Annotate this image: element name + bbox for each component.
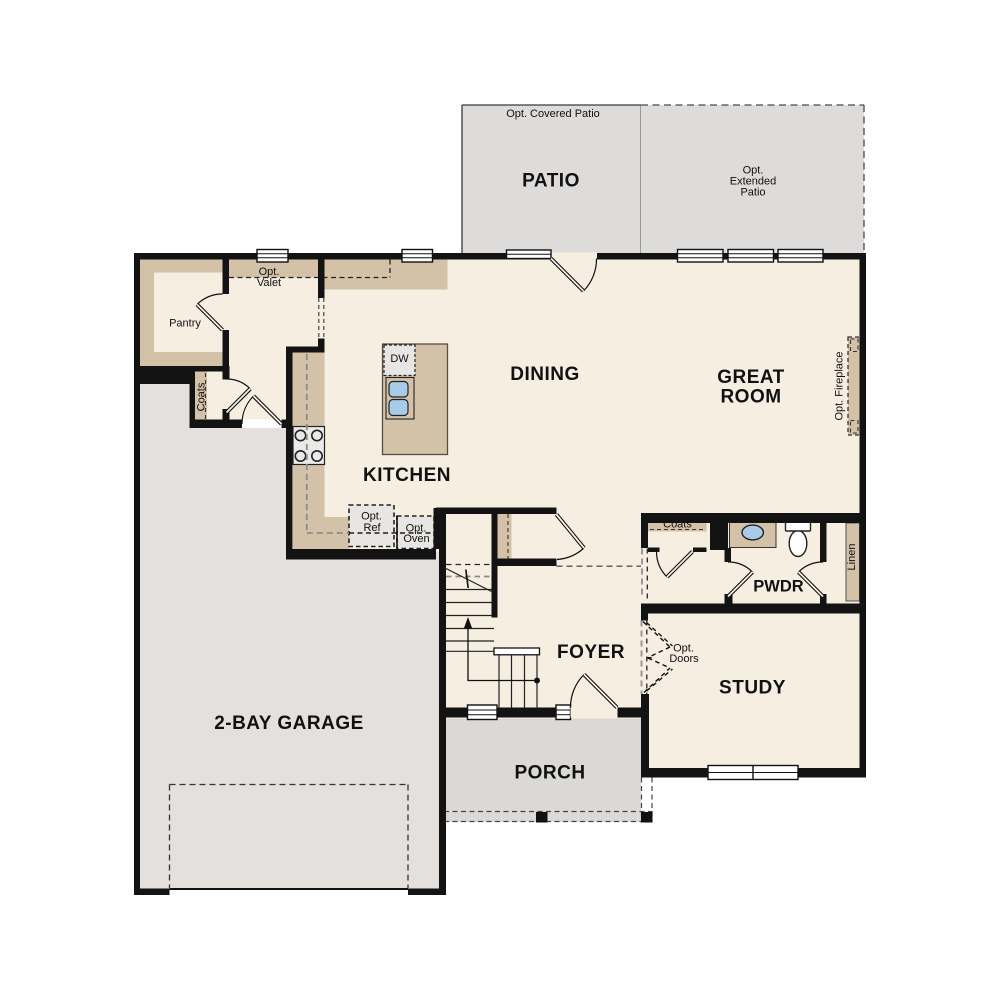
- svg-text:Oven: Oven: [403, 533, 429, 545]
- svg-text:Patio: Patio: [740, 187, 765, 199]
- svg-text:PATIO: PATIO: [522, 171, 580, 192]
- svg-text:Opt. Fireplace: Opt. Fireplace: [834, 351, 846, 420]
- svg-text:PWDR: PWDR: [753, 578, 803, 596]
- svg-text:Opt. Covered Patio: Opt. Covered Patio: [506, 108, 600, 120]
- svg-text:PORCH: PORCH: [514, 763, 585, 784]
- svg-text:FOYER: FOYER: [557, 642, 625, 663]
- svg-text:Pantry: Pantry: [169, 318, 201, 330]
- svg-text:ROOM: ROOM: [720, 387, 781, 408]
- svg-text:Opt.: Opt.: [361, 511, 382, 523]
- svg-text:2-BAY GARAGE: 2-BAY GARAGE: [214, 713, 364, 734]
- svg-text:GREAT: GREAT: [717, 367, 785, 388]
- svg-text:Valet: Valet: [257, 277, 281, 289]
- svg-text:STUDY: STUDY: [719, 678, 786, 699]
- svg-text:Linen: Linen: [846, 544, 858, 571]
- svg-text:DINING: DINING: [510, 364, 580, 385]
- svg-text:Doors: Doors: [669, 653, 699, 665]
- svg-text:Coats: Coats: [663, 519, 692, 531]
- svg-text:Coats: Coats: [196, 382, 208, 411]
- svg-text:KITCHEN: KITCHEN: [363, 465, 451, 486]
- svg-text:DW: DW: [390, 353, 409, 365]
- svg-text:Ref: Ref: [363, 522, 381, 534]
